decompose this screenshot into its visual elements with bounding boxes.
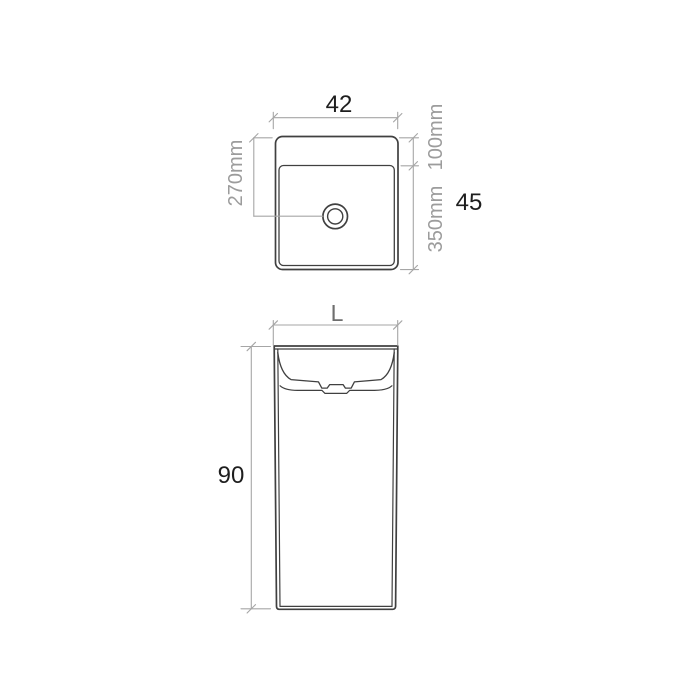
pedestal-outline bbox=[274, 346, 398, 609]
front-view-width-dimension-label: L bbox=[317, 301, 357, 326]
top-view-drawing bbox=[276, 137, 399, 270]
drain-inner-circle bbox=[328, 209, 343, 224]
basin-interior-profile bbox=[278, 353, 394, 389]
top-view-width-dimension-label: 42 bbox=[309, 92, 369, 118]
top-view-bowl-depth-dimension-label: 350mm bbox=[424, 159, 448, 279]
basin-inner-bowl bbox=[279, 166, 394, 266]
top-view-drain-setback-dimension-label: 270mm bbox=[224, 113, 248, 233]
basin-outer-rim bbox=[276, 137, 399, 270]
top-view-height-dimension-label: 45 bbox=[439, 190, 499, 216]
front-view-drawing bbox=[274, 346, 398, 609]
drain-outer-circle bbox=[323, 204, 348, 229]
technical-drawing-page: 42 270mm 100mm 350mm 45 L 90 bbox=[0, 0, 700, 700]
front-view-dimension-lines bbox=[241, 321, 402, 614]
basin-floor-edge bbox=[280, 386, 392, 394]
front-view-height-dimension-label: 90 bbox=[201, 463, 261, 489]
